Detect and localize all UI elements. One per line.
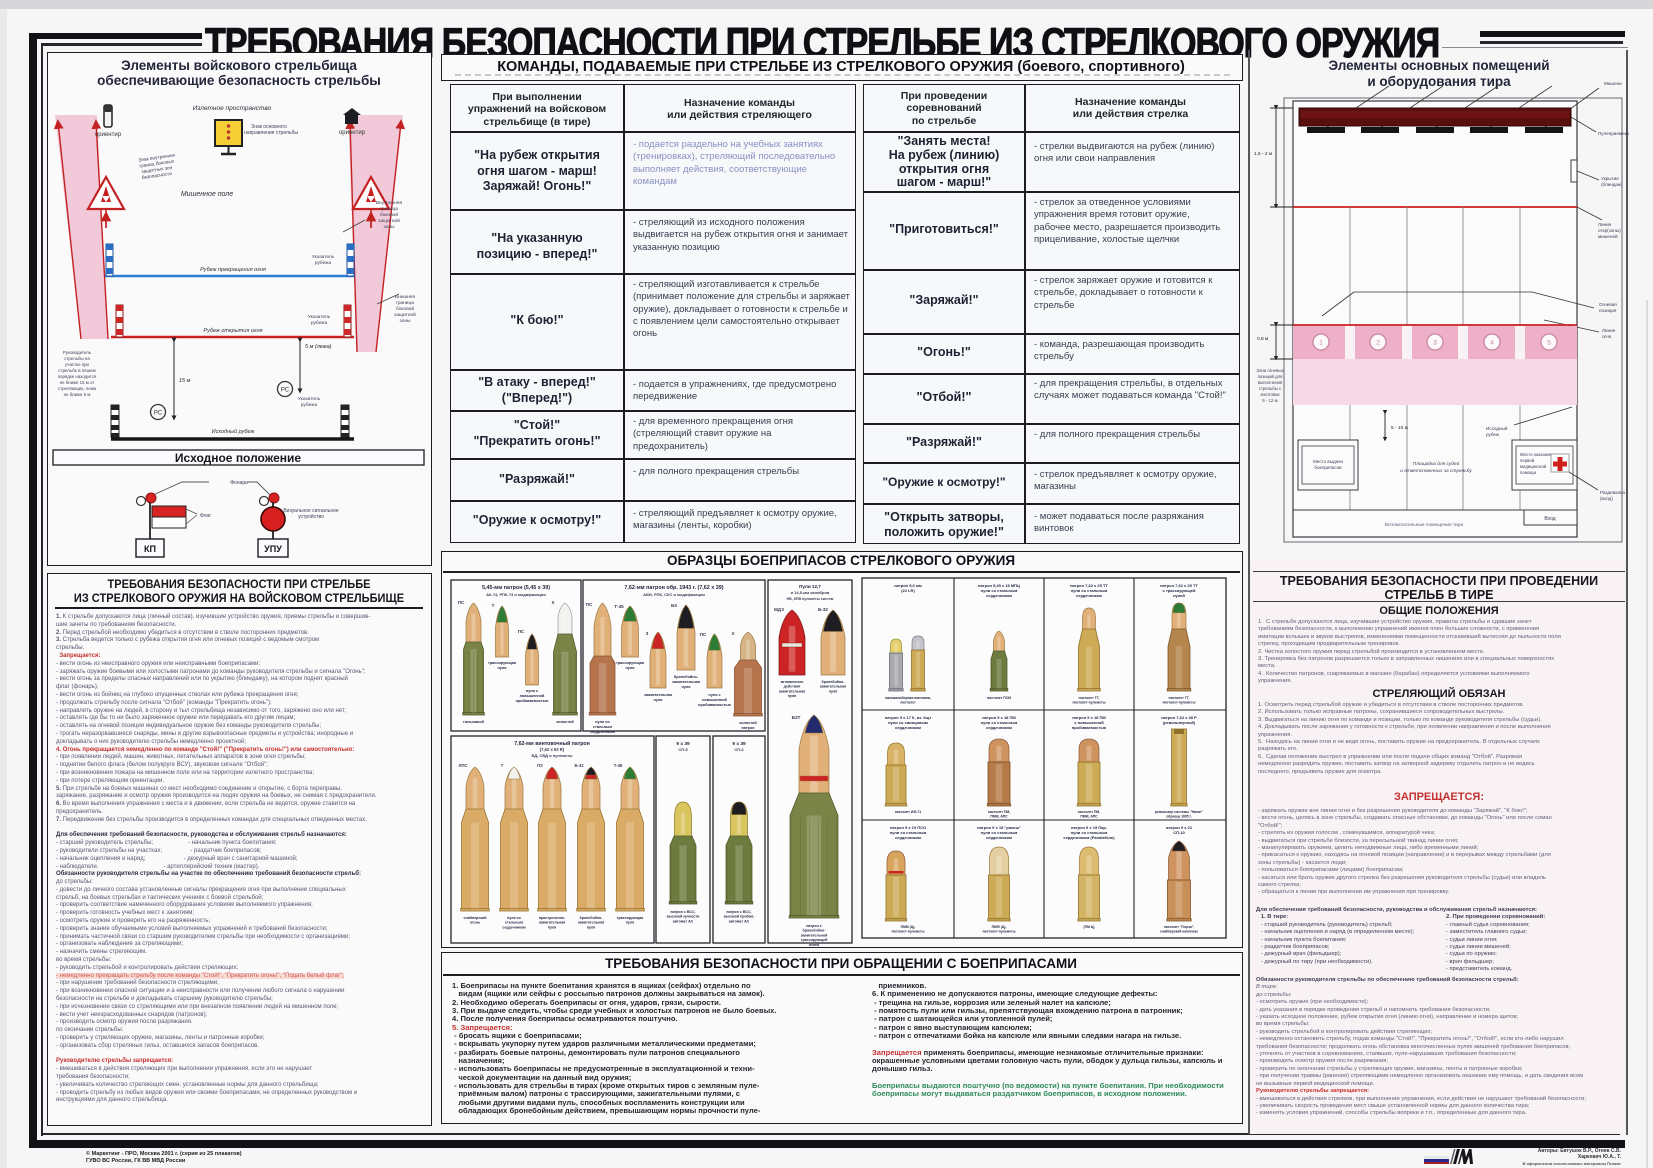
svg-text:Б-32: Б-32 xyxy=(818,607,828,612)
svg-text:Место выдачи: Место выдачи xyxy=(1313,459,1343,464)
svg-text:пуля: пуля xyxy=(788,694,797,698)
svg-text:автомат АС: автомат АС xyxy=(673,919,694,923)
svg-text:Раздевалка: Раздевалка xyxy=(1600,490,1625,495)
svg-text:рубежа: рубежа xyxy=(311,320,328,326)
svg-text:Огневая: Огневая xyxy=(1599,302,1617,307)
svg-text:снайперский комплекс: снайперский комплекс xyxy=(1160,930,1198,934)
svg-text:пистолет-пулеметы: пистолет-пулеметы xyxy=(1162,701,1195,705)
svg-text:зажигательная: зажигательная xyxy=(644,693,672,697)
svg-text:НВ, КПВ пулеметы систем: НВ, КПВ пулеметы систем xyxy=(787,597,834,601)
svg-text:пуля: пуля xyxy=(682,685,691,689)
svg-text:пистолет "Гюрза",: пистолет "Гюрза", xyxy=(1164,925,1195,929)
svg-text:пробиваемостью: пробиваемостью xyxy=(516,699,549,703)
svg-text:защитной: защитной xyxy=(394,311,416,318)
svg-text:пистолет ТТ,: пистолет ТТ, xyxy=(1169,696,1190,700)
svg-text:1: 1 xyxy=(1319,340,1323,347)
svg-text:бронебойно-: бронебойно- xyxy=(580,916,604,920)
svg-text:(ПМ Ц): (ПМ Ц) xyxy=(1084,925,1095,929)
svg-text:не ближе 15 м от: не ближе 15 м от xyxy=(60,380,95,385)
svg-text:(7,62 х 53 R): (7,62 х 53 R) xyxy=(540,747,565,752)
svg-text:трассирующей: трассирующей xyxy=(801,938,828,942)
svg-text:Фонарь: Фонарь xyxy=(230,480,248,486)
svg-text:автомат АС: автомат АС xyxy=(729,919,750,923)
svg-text:Пули 12,7: Пули 12,7 xyxy=(799,584,821,589)
svg-text:УПУ: УПУ xyxy=(264,544,282,554)
svg-text:5: 5 xyxy=(1547,340,1551,347)
svg-text:Б-32: Б-32 xyxy=(574,763,584,768)
svg-text:малокалиберная винтовка,: малокалиберная винтовка, xyxy=(885,696,931,700)
svg-text:холостой: холостой xyxy=(556,720,574,724)
svg-text:5 м (лежа): 5 м (лежа) xyxy=(305,344,332,350)
svg-text:Зона огневых: Зона огневых xyxy=(1256,368,1284,373)
svg-text:сердечником: сердечником xyxy=(502,925,526,929)
svg-text:боковой: боковой xyxy=(396,305,414,312)
svg-text:пистолет ИЖ-71: пистолет ИЖ-71 xyxy=(895,810,922,814)
svg-text:действия: действия xyxy=(784,685,801,689)
svg-text:4: 4 xyxy=(1490,340,1494,347)
svg-text:З: З xyxy=(646,631,649,636)
svg-text:зажигательной: зажигательной xyxy=(801,933,828,937)
svg-text:Т: Т xyxy=(501,763,504,768)
svg-text:пуля: пуля xyxy=(626,666,635,670)
svg-text:мишеней: мишеней xyxy=(1598,233,1618,239)
svg-text:снайперский: снайперский xyxy=(464,916,487,920)
svg-text:стальным: стальным xyxy=(505,921,523,925)
svg-text:7,62-мм патрон обр. 1943 г.: 7,62-мм патрон обр. 1943 г. (7,62 х 39) xyxy=(624,584,723,591)
svg-text:сердечником: сердечником xyxy=(590,730,615,734)
svg-text:Флаг: Флаг xyxy=(200,513,211,519)
svg-text:СП-10: СП-10 xyxy=(1173,830,1185,835)
svg-text:сердечником: сердечником xyxy=(986,835,1012,840)
svg-text:изготовки: изготовки xyxy=(1260,392,1280,397)
svg-text:Указатель: Указатель xyxy=(298,396,321,402)
svg-text:пробиваемостью: пробиваемостью xyxy=(1072,725,1107,730)
svg-text:пистолет-пулеметы: пистолет-пулеметы xyxy=(982,930,1015,934)
svg-text:трассирующая: трассирующая xyxy=(617,916,644,920)
svg-text:СП-6: СП-6 xyxy=(734,747,744,752)
svg-text:откр(зоны): откр(зоны) xyxy=(1598,228,1621,233)
svg-text:ВД, СВД и пулеметы: ВД, СВД и пулеметы xyxy=(532,753,574,758)
svg-text:ПМФ (Ц),: ПМФ (Ц), xyxy=(992,925,1007,929)
svg-text:Внешняя: Внешняя xyxy=(395,294,416,300)
svg-text:стрельбе в пешем: стрельбе в пешем xyxy=(58,368,95,373)
svg-text:ПС: ПС xyxy=(458,600,465,605)
svg-text:Пулеприемник: Пулеприемник xyxy=(1598,131,1630,136)
svg-text:пуля с: пуля с xyxy=(526,689,538,693)
svg-text:Площадка для судей: Площадка для судей xyxy=(1413,460,1460,467)
svg-text:ПС: ПС xyxy=(700,632,707,637)
svg-text:Исходный: Исходный xyxy=(1486,425,1508,431)
svg-text:2: 2 xyxy=(1376,340,1380,347)
svg-text:5,45-мм патрон (5,45 х 39): 5,45-мм патрон (5,45 х 39) xyxy=(482,585,550,591)
svg-text:5 - 12 м: 5 - 12 м xyxy=(1262,398,1277,403)
svg-text:пробиваемостью: пробиваемостью xyxy=(698,703,731,707)
svg-text:холостой: холостой xyxy=(739,721,757,725)
svg-text:РС: РС xyxy=(281,388,290,394)
svg-text:боеприпасов: боеприпасов xyxy=(1314,465,1342,470)
svg-text:зажигательная: зажигательная xyxy=(779,689,806,693)
svg-text:рубеж: рубеж xyxy=(1486,432,1500,437)
svg-text:боковой: боковой xyxy=(380,211,398,218)
svg-text:(22 LR): (22 LR) xyxy=(901,588,915,593)
svg-text:пуля со: пуля со xyxy=(507,916,521,920)
svg-text:пистолет-пулеметы: пистолет-пулеметы xyxy=(891,930,924,934)
svg-text:патрон с: патрон с xyxy=(806,924,822,928)
svg-text:СП-5: СП-5 xyxy=(678,747,688,752)
svg-text:сердечником: сердечником xyxy=(986,725,1012,730)
svg-text:5 - 10 м: 5 - 10 м xyxy=(1391,425,1408,431)
svg-text:зажигательная: зажигательная xyxy=(539,921,566,925)
svg-text:пистолет ПСМ: пистолет ПСМ xyxy=(987,696,1011,700)
svg-text:Рубеж прекращения огня: Рубеж прекращения огня xyxy=(200,267,266,273)
svg-text:ПС: ПС xyxy=(586,602,593,607)
svg-text:огня: огня xyxy=(1602,334,1612,339)
svg-text:стрельбы на: стрельбы на xyxy=(64,356,90,361)
svg-text:МДЗ: МДЗ xyxy=(774,607,784,612)
svg-text:пуля: пуля xyxy=(654,698,663,702)
svg-text:и ответственных за стрельбу: и ответственных за стрельбу xyxy=(1400,468,1472,474)
svg-text:(блиндаж): (блиндаж) xyxy=(1601,182,1623,187)
svg-text:повышенной: повышенной xyxy=(520,694,545,698)
svg-text:устройство: устройство xyxy=(298,513,324,520)
svg-text:зоны: зоны xyxy=(400,319,411,324)
svg-text:пуля: пуля xyxy=(626,921,635,925)
svg-text:порядке находится: порядке находится xyxy=(58,374,97,379)
svg-text:Т-45: Т-45 xyxy=(614,604,624,609)
svg-text:Линия: Линия xyxy=(1602,328,1616,333)
svg-text:ориентир: ориентир xyxy=(95,132,122,138)
svg-text:сердечником (Parabellum): сердечником (Parabellum) xyxy=(1063,835,1115,840)
svg-text:зажигательная: зажигательная xyxy=(578,921,605,925)
svg-text:РС: РС xyxy=(154,411,163,417)
svg-text:БЗТ: БЗТ xyxy=(792,715,801,720)
svg-text:(револьверный): (револьверный) xyxy=(1163,720,1196,725)
svg-text:Укрытие: Укрытие xyxy=(1601,176,1619,181)
svg-text:пуля со: пуля со xyxy=(595,720,610,724)
svg-text:пистолет ПМ,: пистолет ПМ, xyxy=(988,810,1010,814)
svg-text:Руководитель: Руководитель xyxy=(63,350,92,355)
svg-text:ориентир: ориентир xyxy=(339,130,366,136)
svg-text:не ближе 5 м: не ближе 5 м xyxy=(64,392,91,397)
svg-text:образца 1895 г.: образца 1895 г. xyxy=(1166,815,1191,819)
svg-text:патрон: патрон xyxy=(741,726,755,730)
svg-text:стреляющих, лежа: стреляющих, лежа xyxy=(58,386,97,391)
svg-text:Указатель: Указатель xyxy=(312,254,335,260)
svg-text:0,8 м: 0,8 м xyxy=(1257,336,1268,342)
svg-text:ПС: ПС xyxy=(518,629,525,634)
svg-text:высокой кучности: высокой кучности xyxy=(667,915,700,919)
svg-text:гильзовый: гильзовый xyxy=(463,720,484,724)
svg-text:Указатель: Указатель xyxy=(308,314,331,320)
svg-text:первой: первой xyxy=(1520,458,1535,463)
svg-text:трассирующая: трассирующая xyxy=(488,661,516,665)
svg-text:пистолет-пулеметы: пистолет-пулеметы xyxy=(1072,701,1105,705)
svg-text:повышенной: повышенной xyxy=(702,698,727,702)
svg-text:трассирующая: трассирующая xyxy=(616,661,644,665)
svg-text:сердечником: сердечником xyxy=(895,835,921,840)
svg-text:Внутренняя: Внутренняя xyxy=(376,200,403,206)
svg-text:стальным: стальным xyxy=(593,725,612,729)
svg-text:Мишени: Мишени xyxy=(1604,81,1622,86)
svg-text:граница: граница xyxy=(380,207,398,212)
svg-text:пуля: пуля xyxy=(587,925,596,929)
svg-text:участке при: участке при xyxy=(65,362,90,367)
svg-text:бронебойно-: бронебойно- xyxy=(674,675,699,679)
svg-text:Излетное пространство: Излетное пространство xyxy=(193,105,272,112)
svg-text:револьвер системы "Наган": револьвер системы "Наган" xyxy=(1155,810,1203,814)
svg-text:Линия: Линия xyxy=(1598,222,1612,227)
svg-text:пистолет: пистолет xyxy=(900,701,916,705)
svg-text:15 м: 15 м xyxy=(179,378,191,384)
svg-text:защитной: защитной xyxy=(378,217,400,224)
svg-text:БЗ: БЗ xyxy=(671,603,677,608)
svg-text:КП: КП xyxy=(144,544,156,554)
svg-text:пуля: пуля xyxy=(548,925,557,929)
svg-text:пулей: пулей xyxy=(809,943,820,946)
svg-text:пуля: пуля xyxy=(498,666,507,670)
svg-text:выполнения: выполнения xyxy=(1258,380,1283,385)
svg-text:сердечником: сердечником xyxy=(1076,593,1102,598)
svg-text:огонь: огонь xyxy=(470,921,481,925)
svg-text:ПММ, АПС: ПММ, АПС xyxy=(990,815,1008,819)
svg-text:стрельбы с: стрельбы с xyxy=(1259,386,1282,391)
svg-text:мгновенного: мгновенного xyxy=(781,680,805,684)
svg-text:ЛПС: ЛПС xyxy=(459,763,468,768)
svg-text:7,62-мм винтовочный патрон: 7,62-мм винтовочный патрон xyxy=(514,740,590,747)
svg-text:пристрелочно-: пристрелочно- xyxy=(539,916,566,920)
svg-text:граница: граница xyxy=(396,301,414,306)
svg-text:патрон с ВСС,: патрон с ВСС, xyxy=(726,910,751,914)
svg-text:Исходный рубеж: Исходный рубеж xyxy=(212,428,255,435)
svg-text:патрон с ВСС,: патрон с ВСС, xyxy=(670,910,695,914)
svg-text:бронебойно-: бронебойно- xyxy=(822,680,846,684)
svg-text:помощи: помощи xyxy=(1520,470,1537,475)
svg-text:Рубеж открытия огня: Рубеж открытия огня xyxy=(203,328,262,334)
svg-text:позиция: позиция xyxy=(1599,308,1617,313)
svg-text:медицинской: медицинской xyxy=(1520,464,1547,469)
svg-text:Т-46: Т-46 xyxy=(614,763,623,768)
svg-text:Исходное положение: Исходное положение xyxy=(175,451,301,465)
svg-text:Место оказания: Место оказания xyxy=(1520,452,1553,457)
svg-text:Вход: Вход xyxy=(1544,516,1555,522)
svg-text:позиций для: позиций для xyxy=(1258,374,1284,379)
svg-text:ПММ, АПС: ПММ, АПС xyxy=(1080,815,1098,819)
svg-text:и 14,5-мм калибров: и 14,5-мм калибров xyxy=(791,590,830,595)
svg-text:сердечником: сердечником xyxy=(986,593,1012,598)
svg-text:АК-74, РПК-74 и модификации: АК-74, РПК-74 и модификации xyxy=(486,592,546,597)
svg-text:зоны: зоны xyxy=(384,225,395,230)
svg-text:Вспомогательные помещения тира: Вспомогательные помещения тира xyxy=(1385,522,1464,528)
svg-text:3: 3 xyxy=(1433,340,1437,347)
svg-text:ПЗ: ПЗ xyxy=(537,763,543,768)
svg-text:пуля с: пуля с xyxy=(708,693,720,697)
svg-text:Т: Т xyxy=(492,603,495,608)
svg-text:пуля: пуля xyxy=(829,689,838,693)
svg-text:1,5 - 2 м: 1,5 - 2 м xyxy=(1254,151,1272,157)
svg-text:АКМ, РПК, СКС и модификации: АКМ, РПК, СКС и модификации xyxy=(643,592,705,597)
svg-text:(вход): (вход) xyxy=(1600,496,1613,501)
svg-text:зажигательная: зажигательная xyxy=(820,685,847,689)
svg-text:ПММ (Ц),: ПММ (Ц), xyxy=(901,925,916,929)
svg-text:рубежа: рубежа xyxy=(301,402,318,408)
svg-text:направления стрельбы: направления стрельбы xyxy=(244,130,298,136)
svg-text:пистолет ПМ,: пистолет ПМ, xyxy=(1078,810,1100,814)
svg-text:сердечником: сердечником xyxy=(895,725,921,730)
svg-text:рубежа: рубежа xyxy=(315,260,332,266)
svg-text:зажигательная: зажигательная xyxy=(672,680,700,684)
svg-text:Мишенное поле: Мишенное поле xyxy=(181,191,233,198)
svg-text:пистолет ТТ,: пистолет ТТ, xyxy=(1079,696,1100,700)
svg-text:высокой пробив.: высокой пробив. xyxy=(724,915,755,919)
svg-text:пулей: пулей xyxy=(1173,593,1185,598)
svg-text:бронебойно-: бронебойно- xyxy=(803,929,827,933)
